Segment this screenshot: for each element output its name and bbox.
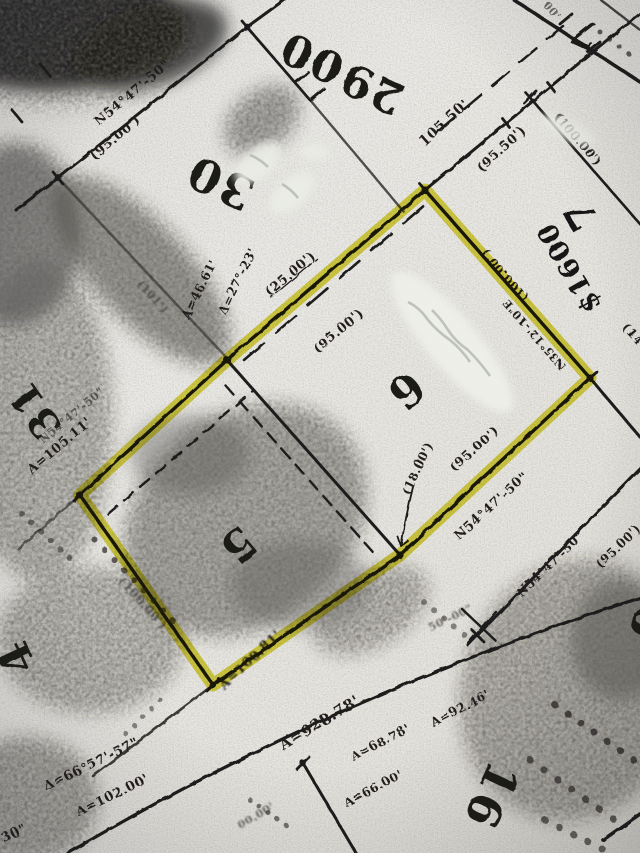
photo-vignette: [0, 0, 640, 853]
plat-map-photo: Photocopied subdivision plat map; lots 5…: [0, 0, 640, 853]
plat-map-canvas: 290030314561667N54°47'-50"(95.00')105.50…: [0, 0, 640, 853]
